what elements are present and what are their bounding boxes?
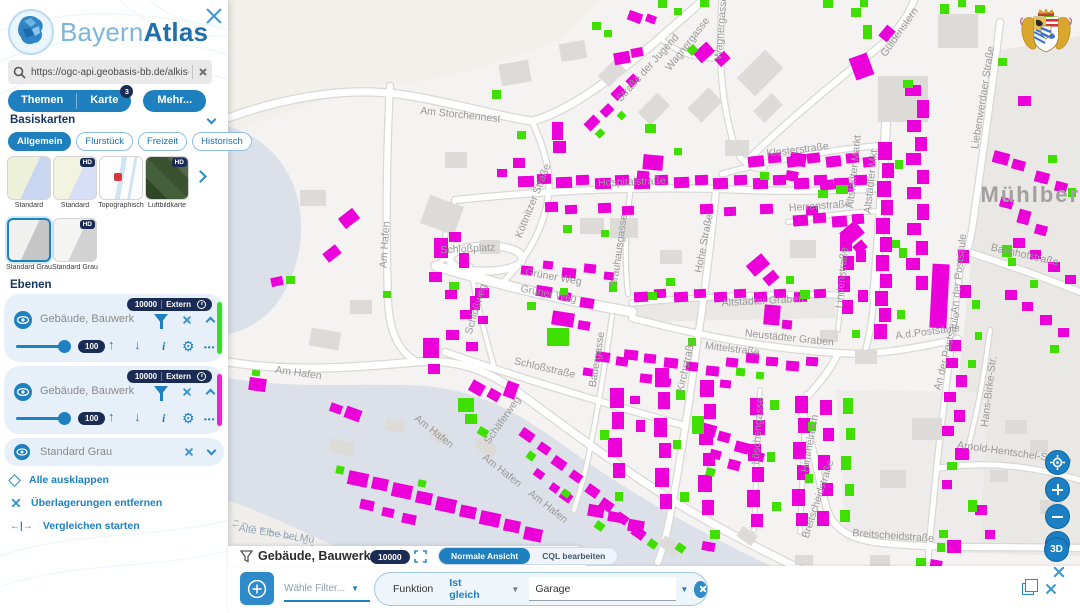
zoom-out-button[interactable] (1045, 504, 1070, 529)
layer-badges: 10000 Extern (127, 370, 212, 383)
basemap-thumb-0[interactable] (7, 156, 51, 200)
layer-info-icon[interactable]: i (162, 411, 165, 426)
layer-remove-icon[interactable] (182, 315, 192, 325)
layer-more-icon[interactable]: ••• (204, 415, 215, 424)
svg-text:←: ← (231, 518, 242, 530)
layer-color-strip (217, 374, 222, 426)
layer-visibility-toggle[interactable] (13, 310, 33, 335)
operator-select[interactable]: Ist gleich (449, 577, 483, 601)
expand-panel-icon[interactable] (414, 550, 427, 563)
layer-remove-icon[interactable] (182, 387, 192, 397)
layer-card-standard-grau: Standard Grau (4, 438, 224, 466)
basemap-thumb-label: Standard (5, 202, 53, 209)
operator-caret-icon[interactable]: ▼ (511, 585, 519, 594)
filter-rule-group: Funktion Ist gleich ▼ ▼ (374, 572, 708, 606)
brand-bold: Atlas (144, 17, 209, 47)
sidebar: BayernAtlas https://ogc-api.geobasis-bb.… (0, 0, 228, 613)
sidebar-link-label: Alle ausklappen (29, 474, 109, 486)
tab-normale-ansicht[interactable]: Normale Ansicht (439, 548, 530, 564)
ebenen-heading: Ebenen (10, 279, 52, 291)
basemap-thumb-2[interactable] (99, 156, 143, 200)
bavaria-coat-of-arms (1018, 8, 1074, 58)
sidebar-link-remove-x[interactable]: Überlagerungen entfernen (10, 497, 162, 509)
layer-color-strip (217, 302, 222, 354)
layer-more-icon[interactable]: ••• (204, 343, 215, 352)
basemap-tab-allgemein[interactable]: Allgemein (8, 132, 71, 151)
sidebar-link-expand-all[interactable]: Alle ausklappen (10, 474, 109, 486)
filter-field-label: Funktion (393, 583, 433, 595)
layer-badges: 10000 Extern (127, 298, 212, 311)
clock-icon (197, 300, 206, 309)
hd-badge: HD (172, 158, 187, 167)
move-layer-up-icon[interactable]: ↑ (108, 409, 115, 424)
layer-settings-icon[interactable]: ⚙ (182, 339, 195, 353)
filter-layer-title: Gebäude, Bauwerk (258, 549, 371, 563)
basemap-thumb-label: Standard Grau (51, 264, 99, 271)
basiskarten-collapse-icon[interactable] (207, 115, 217, 125)
caret-down-icon: ▼ (351, 584, 359, 593)
add-filter-button[interactable] (240, 572, 274, 605)
basemap-thumb-5[interactable]: HD (53, 218, 97, 262)
search-bar[interactable]: https://ogc-api.geobasis-bb.de/alkis-ver… (8, 60, 212, 84)
filter-funnel-icon (240, 550, 253, 563)
basemap-tab-flurstück[interactable]: Flurstück (76, 132, 133, 151)
close-filter-panel-icon[interactable] (1052, 565, 1066, 579)
move-layer-up-icon[interactable]: ↑ (108, 337, 115, 352)
sidebar-link-compare[interactable]: ←|→Vergleichen starten (10, 520, 140, 532)
compare-icon: ←|→ (10, 521, 33, 532)
basemap-thumb-label: Topographisch (97, 202, 145, 209)
choose-filter-placeholder: Wähle Filter... (284, 583, 345, 594)
search-icon (13, 66, 26, 79)
basemap-thumb-label: Luftbildkarte (143, 202, 191, 209)
themen-button[interactable]: Themen (8, 90, 76, 112)
basemap-thumb-1[interactable]: HD (53, 156, 97, 200)
layer-info-icon[interactable]: i (162, 339, 165, 354)
layer-name: Gebäude, Bauwerk (40, 385, 134, 397)
view-mode-tabs: Normale Ansicht CQL bearbeiten (438, 547, 618, 565)
sidebar-link-label: Vergleichen starten (43, 520, 140, 532)
basemap-tab-freizeit[interactable]: Freizeit (138, 132, 187, 151)
remove-filter-row-icon[interactable] (1044, 582, 1057, 595)
nav-buttons: Themen Karte 3 Mehr... (8, 90, 206, 112)
basemap-thumb-4[interactable] (7, 218, 51, 262)
extern-badge: Extern (162, 372, 195, 381)
opacity-value-badge: 100 (78, 340, 105, 353)
zoom-in-button[interactable] (1045, 477, 1070, 502)
clear-value-button[interactable] (694, 581, 707, 598)
opacity-slider-thumb[interactable] (58, 340, 71, 353)
tab-cql-bearbeiten[interactable]: CQL bearbeiten (530, 548, 617, 564)
extern-badge: Extern (162, 300, 195, 309)
hd-badge: HD (80, 158, 95, 167)
geolocate-button[interactable] (1045, 450, 1070, 475)
value-caret-icon[interactable]: ▼ (680, 585, 688, 594)
clock-icon (197, 372, 206, 381)
sidebar-link-label: Überlagerungen entfernen (31, 497, 162, 509)
filter-panel: Gebäude, Bauwerk 10000 Normale Ansicht C… (228, 546, 1080, 613)
feature-count-badge: 10000 (131, 300, 161, 309)
feature-count-badge: 10000 (131, 372, 161, 381)
opacity-slider-thumb[interactable] (58, 412, 71, 425)
filter-panel-header: Gebäude, Bauwerk 10000 Normale Ansicht C… (228, 546, 586, 567)
brand-light: Bayern (60, 17, 144, 47)
basiskarten-heading: Basiskarten (10, 114, 75, 126)
clear-search-icon[interactable] (198, 68, 207, 77)
choose-filter-select[interactable]: Wähle Filter... ▼ (284, 576, 370, 602)
layer-remove-icon[interactable] (184, 447, 194, 457)
minus-icon (1052, 516, 1063, 518)
bayernatlas-logo (8, 9, 54, 55)
basemap-thumb-3[interactable]: HD (145, 156, 189, 200)
layer-name: Standard Grau (40, 446, 112, 458)
layer-card-gebaeude-1: 10000 Extern Gebäude, Bauwerk 100 ↑ ↓ i … (4, 294, 224, 362)
basemap-thumb-label: Standard Grau (5, 264, 53, 271)
svg-text:Mühlberg: Mühlberg (981, 182, 1080, 207)
expand-all-icon (8, 474, 21, 487)
brand-title: BayernAtlas (60, 17, 208, 48)
layer-settings-icon[interactable]: ⚙ (182, 411, 195, 425)
layer-filter-icon[interactable] (154, 386, 168, 395)
duplicate-filter-icon[interactable] (1022, 583, 1034, 595)
move-layer-down-icon[interactable]: ↓ (134, 337, 141, 352)
bayernatlas-app: Am StorchennestStraße der JugendWagnerga… (0, 0, 1080, 613)
move-layer-down-icon[interactable]: ↓ (134, 409, 141, 424)
layer-card-gebaeude-2: 10000 Extern Gebäude, Bauwerk 100 ↑ ↓ i … (4, 366, 224, 434)
layer-visibility-toggle[interactable] (13, 443, 31, 466)
layer-expand-icon[interactable] (207, 446, 217, 456)
layer-visibility-toggle[interactable] (13, 382, 33, 407)
karte-button[interactable]: Karte 3 (77, 90, 131, 112)
basemap-tab-historisch[interactable]: Historisch (192, 132, 252, 151)
svg-text:Hospitalstraße: Hospitalstraße (598, 175, 666, 189)
layer-collapse-icon[interactable] (206, 317, 216, 327)
opacity-value-badge: 100 (78, 412, 105, 425)
basemap-tabs: AllgemeinFlurstückFreizeitHistorisch (8, 132, 252, 151)
hd-badge: HD (80, 220, 95, 229)
filter-count-badge: 10000 (370, 550, 410, 564)
layer-name: Gebäude, Bauwerk (40, 313, 134, 325)
search-input[interactable]: https://ogc-api.geobasis-bb.de/alkis-ver… (31, 67, 189, 78)
layer-collapse-icon[interactable] (206, 389, 216, 399)
basemap-thumb-label: Standard (51, 202, 99, 209)
plus-circle-icon (247, 579, 267, 599)
filter-value-input[interactable] (529, 577, 676, 601)
mehr-button[interactable]: Mehr... (143, 90, 206, 112)
geolocate-icon (1050, 455, 1065, 470)
karte-count-badge: 3 (120, 85, 133, 98)
thumbs-scroll-right-icon[interactable] (194, 170, 207, 183)
remove-overlays-icon (10, 498, 21, 509)
layer-filter-icon[interactable] (154, 314, 168, 323)
